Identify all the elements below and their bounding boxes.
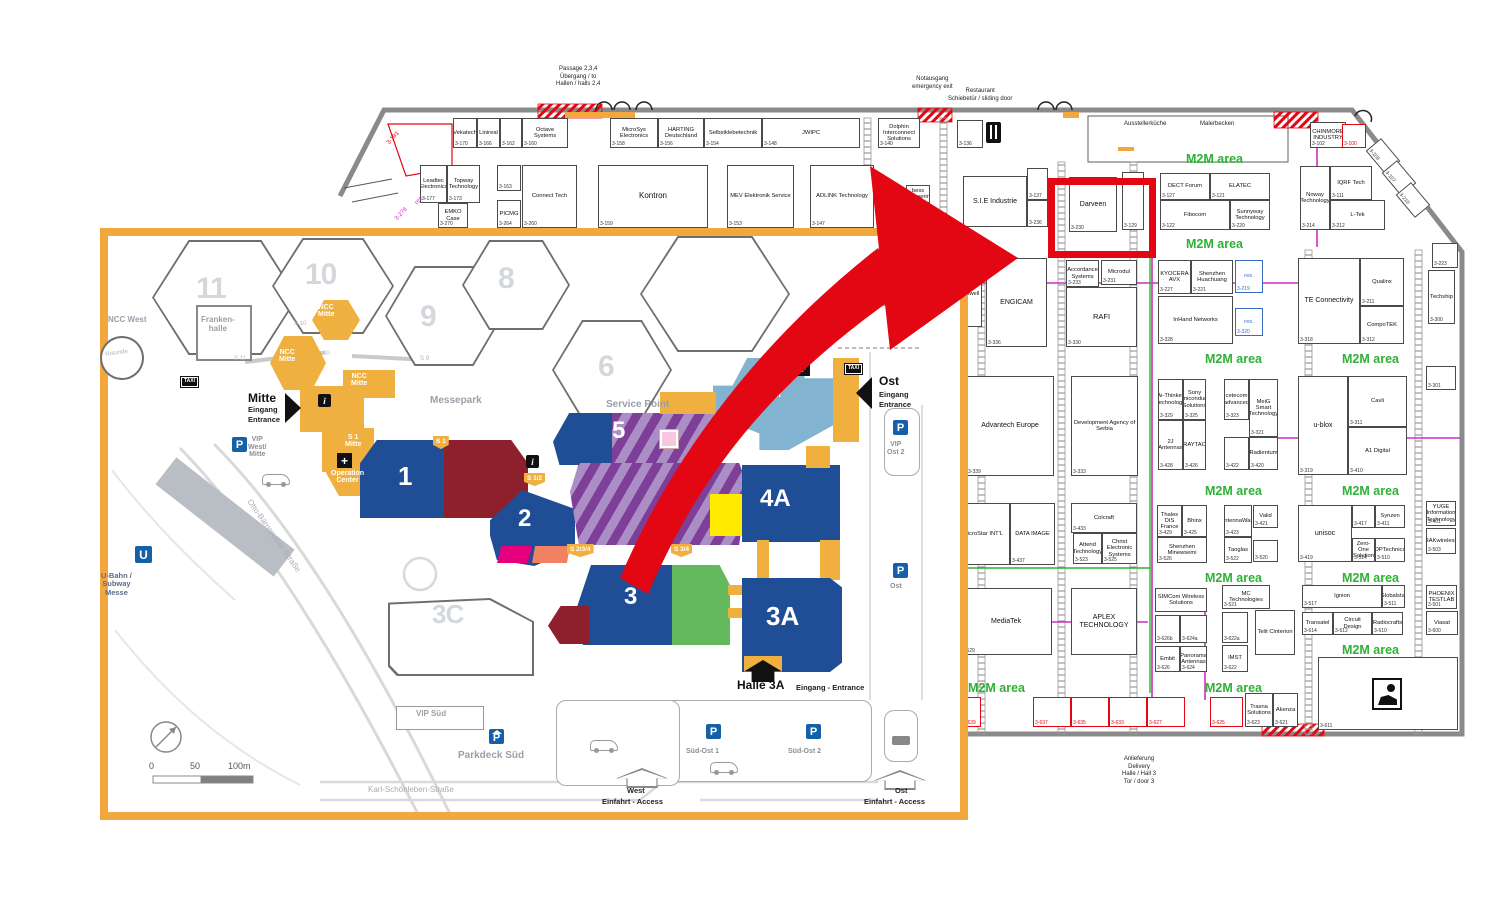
fairground-map-page: Vekatech3-170Linireal3-1663-162Octave Sy… [0,0,1500,900]
red-locator-arrow [0,0,1500,900]
